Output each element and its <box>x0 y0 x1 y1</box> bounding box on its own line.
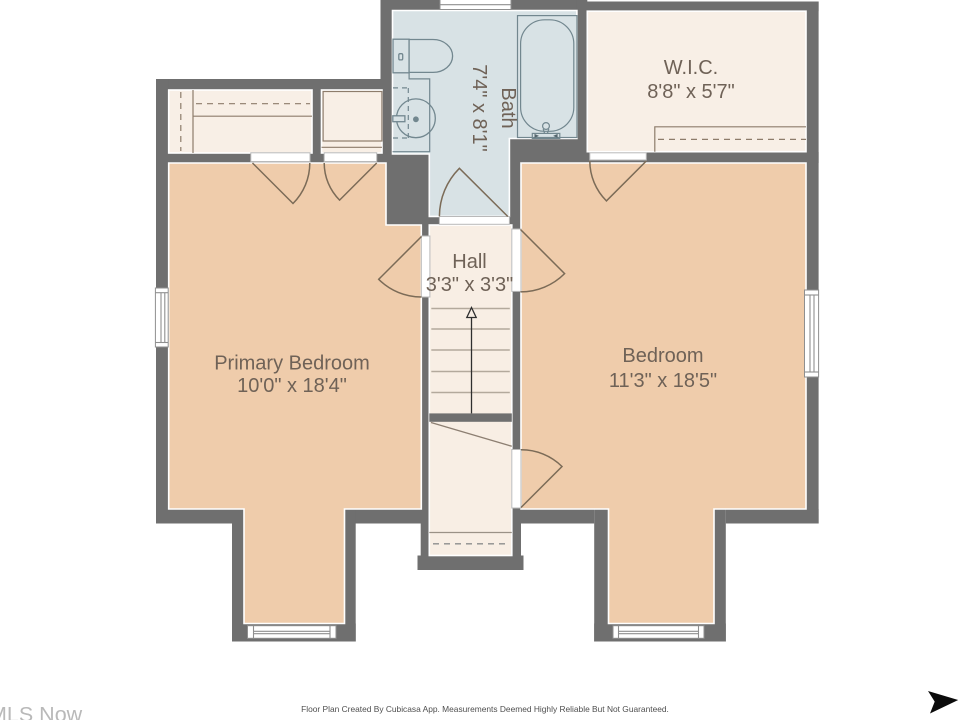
svg-text:10'0" x 18'4": 10'0" x 18'4" <box>237 375 347 397</box>
svg-text:Bedroom: Bedroom <box>622 345 703 367</box>
svg-text:Bath: Bath <box>497 87 519 128</box>
svg-text:MLS Now: MLS Now <box>0 703 83 720</box>
svg-text:W.I.C.: W.I.C. <box>664 57 718 79</box>
svg-text:3'3" x 3'3": 3'3" x 3'3" <box>426 274 513 296</box>
svg-text:Primary Bedroom: Primary Bedroom <box>214 353 370 375</box>
svg-text:7'4" x 8'1": 7'4" x 8'1" <box>468 64 490 151</box>
svg-text:Floor Plan Created By Cubicasa: Floor Plan Created By Cubicasa App. Meas… <box>301 704 669 714</box>
svg-text:11'3" x 18'5": 11'3" x 18'5" <box>609 370 717 392</box>
svg-text:Hall: Hall <box>452 251 486 273</box>
svg-text:8'8" x 5'7": 8'8" x 5'7" <box>647 81 734 103</box>
